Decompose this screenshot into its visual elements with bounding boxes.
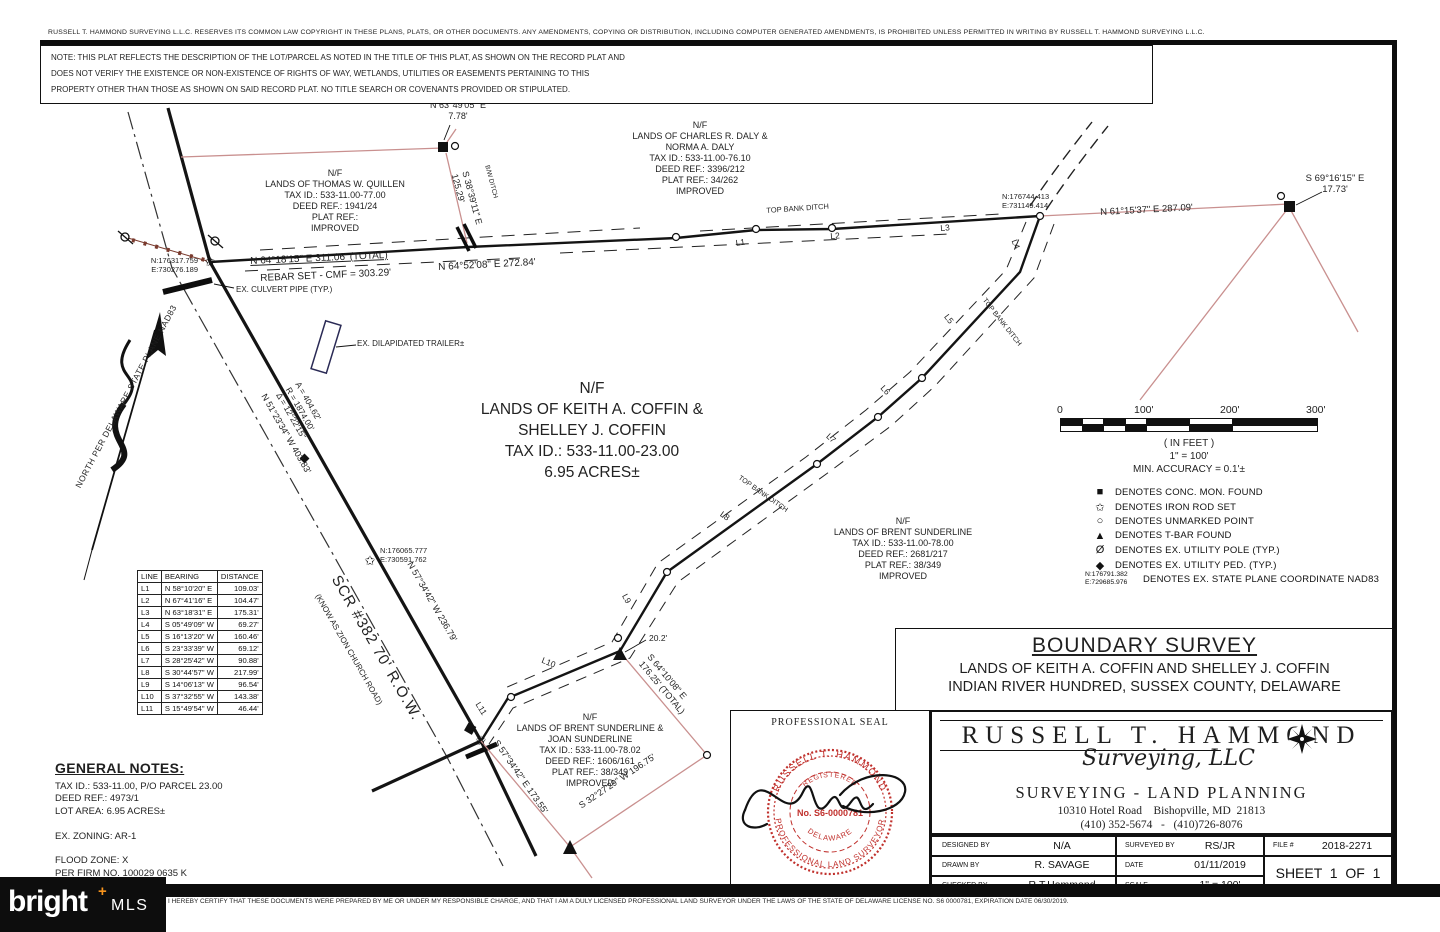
ditch-crossing-road	[372, 741, 481, 791]
legend-text: DENOTES CONC. MON. FOUND	[1115, 487, 1263, 498]
scale-units-label: ( IN FEET )	[1060, 438, 1318, 449]
legend-text: DENOTES EX. UTILITY PED. (TYP.)	[1115, 560, 1277, 571]
drawn-by-label: DRAWN BY	[942, 862, 979, 869]
line-table-row: L3N 63°18'31" E175.31'	[138, 607, 263, 619]
record-plat-note: NOTE: THIS PLAT REFLECTS THE DESCRIPTION…	[40, 45, 1153, 104]
scale-accuracy-label: MIN. ACCURACY = 0.1'±	[1060, 464, 1318, 475]
scale-bar-row-1	[1060, 418, 1318, 425]
scale-bar: 0 100' 200' 300' ( IN FEET ) 1" = 100' M…	[1060, 404, 1318, 475]
legend-text: DENOTES T-BAR FOUND	[1115, 530, 1232, 541]
firm-phones: (410) 352-5674 - (410)726-8076	[932, 819, 1391, 831]
parcel-block-sunderline-joan: N/F LANDS OF BRENT SUNDERLINE & JOAN SUN…	[480, 712, 700, 789]
segment-label-l3: L3	[940, 222, 950, 234]
line-table-row: L2N 67°41'16" E104.47'	[138, 595, 263, 607]
legend-item: ✩DENOTES IRON ROD SET	[1085, 501, 1236, 514]
line-table-row: L8S 30°44'57" W217.99'	[138, 667, 263, 679]
culvert-bar-north	[163, 280, 212, 292]
legend-symbol: ■	[1085, 486, 1115, 498]
svg-text:✩: ✩	[365, 553, 376, 568]
quillen-north-line	[181, 148, 443, 157]
firm-rule-top	[940, 720, 1383, 721]
line-table: LINE BEARING DISTANCE L1N 58°10'20" E109…	[137, 570, 263, 715]
line-table-row: L7S 28°25'42" W90.88'	[138, 655, 263, 667]
scale-tick: 100'	[1134, 404, 1154, 416]
conc-monument-icon	[438, 142, 448, 152]
general-notes-body: TAX ID.: 533-11.00, P/O PARCEL 23.00 DEE…	[55, 781, 223, 893]
conc-monument-icon	[1284, 201, 1295, 212]
seal-ring-top-text: RUSSELL T. HAMMOND	[771, 749, 889, 794]
brightmls-logo: bright + MLS	[0, 877, 166, 932]
compass-rose-icon	[1286, 723, 1318, 755]
legend-item: ■DENOTES CONC. MON. FOUND	[1085, 486, 1263, 498]
legend-symbol: ○	[1085, 515, 1115, 527]
line-table-body: L1N 58°10'20" E109.03'L2N 67°41'16" E104…	[138, 583, 263, 715]
survey-plat-sheet: ✩✩✩ RUSSELL T. HAMMOND SURVEYING L.L.C. …	[0, 0, 1440, 932]
line-table-row: L1N 58°10'20" E109.03'	[138, 583, 263, 595]
svg-text:RUSSELL T. HAMMOND: RUSSELL T. HAMMOND	[771, 749, 889, 794]
surveyed-by-label: SURVEYED BY	[1125, 842, 1175, 849]
parcel-block-sunderline-brent: N/F LANDS OF BRENT SUNDERLINE TAX ID.: 5…	[793, 516, 1013, 582]
seal-box: PROFESSIONAL SEAL RUSSELL T. HAMMOND PRO…	[730, 710, 930, 896]
general-notes-title: GENERAL NOTES:	[55, 760, 223, 776]
line-table-row: L10S 37°32'55" W143.38'	[138, 691, 263, 703]
copyright-line: RUSSELL T. HAMMOND SURVEYING L.L.C. RESE…	[48, 29, 1205, 36]
parcel-block-quillen: N/F LANDS OF THOMAS W. QUILLEN TAX ID.: …	[215, 168, 455, 234]
segment-label-l2: L2	[830, 230, 840, 242]
segment-label-l1: L1	[735, 237, 746, 249]
line-table-row: L6S 23°33'39" W69.12'	[138, 643, 263, 655]
line-table-row: L5S 16°13'20" W160.46'	[138, 631, 263, 643]
scale-tick: 200'	[1220, 404, 1240, 416]
coordinate-label-nw: N:176317.759 E:730276.189	[103, 256, 198, 274]
title-section: BOUNDARY SURVEY LANDS OF KEITH A. COFFIN…	[895, 628, 1393, 713]
coordinate-label-ne: N:176744.413 E:731149.414	[1002, 192, 1049, 210]
svg-text:PROFESSIONAL LAND SURVEYOR: PROFESSIONAL LAND SURVEYOR	[773, 818, 886, 869]
seal-state-text: DELAWARE	[806, 826, 854, 842]
designed-by-label: DESIGNED BY	[942, 842, 990, 849]
legend-item: ØDENOTES EX. UTILITY POLE (TYP.)	[1085, 544, 1280, 556]
legend-text: DENOTES EX. STATE PLANE COORDINATE NAD83	[1143, 574, 1379, 585]
certification-line: I HEREBY CERTIFY THAT THESE DOCUMENTS WE…	[168, 898, 1268, 905]
brightmls-logo-sub: MLS	[111, 897, 148, 915]
legend-item: ◆DENOTES EX. UTILITY PED. (TYP.)	[1085, 559, 1277, 572]
surveyed-by-value: RS/JR	[1180, 840, 1260, 852]
dimension-label-20: 20.2'	[649, 633, 667, 644]
note-label-culvert: EX. CULVERT PIPE (TYP.)	[236, 284, 332, 295]
line-table-header-bearing: BEARING	[161, 571, 217, 583]
legend-item: ▲DENOTES T-BAR FOUND	[1085, 530, 1232, 542]
file-number-label: FILE #	[1273, 842, 1294, 849]
legend-symbol: ✩	[1085, 501, 1115, 514]
ditch-continuation-ne-1	[1046, 126, 1108, 210]
seal-header: PROFESSIONAL SEAL	[731, 717, 929, 728]
legend-text: DENOTES UNMARKED POINT	[1115, 516, 1254, 527]
designed-by-value: N/A	[1012, 840, 1112, 852]
firm-tagline: SURVEYING - LAND PLANNING	[932, 783, 1391, 803]
legend-symbol: Ø	[1085, 544, 1115, 556]
drawn-by-value: R. SAVAGE	[1012, 859, 1112, 871]
firm-script-name: Surveying, LLC	[1082, 746, 1255, 771]
seal-ring-bottom-text: PROFESSIONAL LAND SURVEYOR	[773, 818, 886, 869]
coordinate-label-road: N:176065.777 E:730591.762	[380, 546, 427, 564]
bottom-border-bar	[0, 884, 1440, 897]
parcel-block-daly: N/F LANDS OF CHARLES R. DALY & NORMA A. …	[580, 120, 820, 197]
brightmls-logo-plus: +	[98, 883, 107, 900]
legend-text: DENOTES EX. UTILITY POLE (TYP.)	[1115, 545, 1280, 556]
firm-block: RUSSELL T. HAMMOND Surveying, LLC SURVEY…	[930, 710, 1393, 835]
legend-text: DENOTES IRON ROD SET	[1115, 502, 1236, 513]
line-table-row: L11S 15°49'54" W46.44'	[138, 703, 263, 715]
line-table-row: L4S 05°49'09" W69.27'	[138, 619, 263, 631]
legend-symbol: ▲	[1085, 530, 1115, 542]
line-table-header-line: LINE	[138, 571, 162, 583]
date-label: DATE	[1125, 862, 1143, 869]
scale-bar-row-2	[1060, 425, 1318, 432]
scale-ratio-label: 1" = 100'	[1060, 451, 1318, 462]
ne-adjoiner-ray-sw	[1140, 207, 1289, 400]
note-label-trailer: EX. DILAPIDATED TRAILER±	[357, 338, 464, 349]
firm-address: 10310 Hotel Road Bishopville, MD 21813	[932, 805, 1391, 817]
ne-adjoiner-ray-se	[1289, 207, 1358, 332]
svg-text:DELAWARE: DELAWARE	[806, 826, 854, 842]
svg-text:✩: ✩	[205, 254, 216, 269]
parcel-block-coffin: N/F LANDS OF KEITH A. COFFIN & SHELLEY J…	[427, 378, 757, 483]
legend-item: N:176791.382 E:729685.976DENOTES EX. STA…	[1085, 571, 1379, 587]
scale-tick: 300'	[1306, 404, 1326, 416]
conc-monument-icon	[464, 723, 476, 735]
scale-tick: 0	[1057, 404, 1063, 416]
survey-title: BOUNDARY SURVEY	[896, 634, 1393, 658]
line-table-row: L9S 14°06'13" W96.54'	[138, 679, 263, 691]
date-value: 01/11/2019	[1180, 859, 1260, 871]
survey-subtitle-location: INDIAN RIVER HUNDRED, SUSSEX COUNTY, DEL…	[896, 679, 1393, 695]
brightmls-logo-text: bright	[8, 885, 87, 919]
file-number-value: 2018-2271	[1307, 840, 1387, 852]
legend-symbol: ◆	[1085, 559, 1115, 572]
sheet-number: SHEET 1 OF 1	[1265, 865, 1391, 881]
survey-subtitle-owners: LANDS OF KEITH A. COFFIN AND SHELLEY J. …	[896, 661, 1393, 677]
line-table-header-distance: DISTANCE	[217, 571, 262, 583]
bearing-label-s69: S 69°16'15" E 17.73'	[1280, 173, 1390, 195]
legend-symbol: N:176791.382 E:729685.976	[1085, 571, 1143, 587]
legend-item: ○DENOTES UNMARKED POINT	[1085, 515, 1254, 527]
professional-seal: RUSSELL T. HAMMOND PROFESSIONAL LAND SUR…	[745, 730, 915, 890]
general-notes: GENERAL NOTES: TAX ID.: 533-11.00, P/O P…	[55, 760, 223, 893]
